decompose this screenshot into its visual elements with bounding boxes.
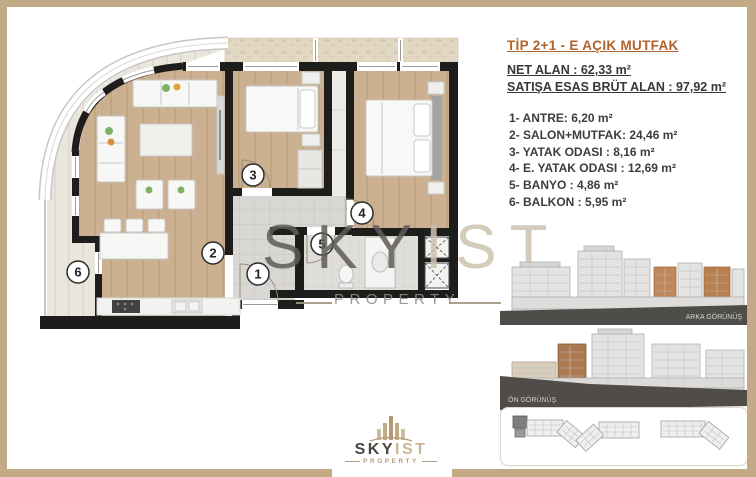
keyplan-thumbnails bbox=[501, 408, 747, 463]
frame-left bbox=[0, 0, 7, 477]
floor-hall-corridor bbox=[233, 196, 346, 227]
stove bbox=[112, 300, 140, 313]
keyplan-thumb-2 bbox=[576, 422, 639, 451]
closet-strip bbox=[332, 71, 346, 196]
frame-bottom-left bbox=[0, 469, 332, 477]
unit-type-title: TİP 2+1 - E AÇIK MUTFAK bbox=[507, 38, 679, 53]
room-list-item: 4- E. YATAK ODASI : 12,69 m² bbox=[509, 160, 677, 177]
keyplan-thumb-3 bbox=[661, 421, 729, 449]
logo-dash-right bbox=[422, 461, 437, 462]
logo-sky: SKY bbox=[355, 441, 395, 458]
elevation-front-label: ÖN GÖRÜNÜŞ bbox=[508, 396, 557, 404]
room-number-1: 1 bbox=[254, 267, 261, 282]
room-list-item: 3- YATAK ODASI : 8,16 m² bbox=[509, 144, 677, 161]
toilet bbox=[339, 265, 353, 283]
room-list-item: 1- ANTRE: 6,20 m² bbox=[509, 110, 677, 127]
elevation-back-label: ARKA GÖRÜNÜŞ bbox=[686, 313, 743, 321]
elevation-front-view: ÖN GÖRÜNÜŞ bbox=[500, 328, 748, 413]
room-number-5: 5 bbox=[318, 237, 325, 252]
floor-hall bbox=[233, 227, 295, 300]
net-area-line: NET ALAN : 62,33 m² bbox=[507, 63, 631, 77]
room-number-2: 2 bbox=[209, 246, 216, 261]
elevation-back-view: ARKA GÖRÜNÜŞ bbox=[500, 233, 748, 328]
logo-property: PROPERTY bbox=[363, 458, 419, 465]
watermark-dash-right bbox=[449, 302, 501, 304]
room-number-3: 3 bbox=[249, 168, 256, 183]
room-number-4: 4 bbox=[358, 206, 366, 221]
frame-top bbox=[0, 0, 756, 7]
shafts bbox=[425, 237, 449, 288]
room-number-6: 6 bbox=[74, 265, 81, 280]
watermark-dash-left bbox=[296, 302, 332, 304]
brochure-page: 1 2 3 4 5 6 SKYIST PROPERTY TİP 2+1 - E … bbox=[0, 0, 756, 477]
keyplan-thumbnails-box bbox=[500, 407, 748, 466]
frame-bottom-right bbox=[452, 469, 756, 477]
room-list: 1- ANTRE: 6,20 m² 2- SALON+MUTFAK: 24,46… bbox=[509, 110, 677, 211]
gross-area-line: SATIŞA ESAS BRÜT ALAN : 97,92 m² bbox=[507, 80, 726, 94]
logo-property-row: PROPERTY bbox=[326, 458, 456, 465]
logo-wordmark: SKYIST bbox=[326, 442, 456, 457]
keyplan-thumb-1 bbox=[513, 416, 585, 448]
brand-logo: SKYIST PROPERTY bbox=[326, 416, 456, 465]
room-list-item: 5- BANYO : 4,86 m² bbox=[509, 177, 677, 194]
room-list-item: 2- SALON+MUTFAK: 24,46 m² bbox=[509, 127, 677, 144]
room-list-item: 6- BALKON : 5,95 m² bbox=[509, 194, 677, 211]
headboard bbox=[432, 96, 442, 180]
exterior-band bbox=[225, 38, 458, 62]
logo-ist: IST bbox=[395, 441, 427, 458]
logo-dash-left bbox=[345, 461, 360, 462]
frame-right bbox=[747, 0, 756, 477]
building-icon bbox=[369, 416, 413, 442]
